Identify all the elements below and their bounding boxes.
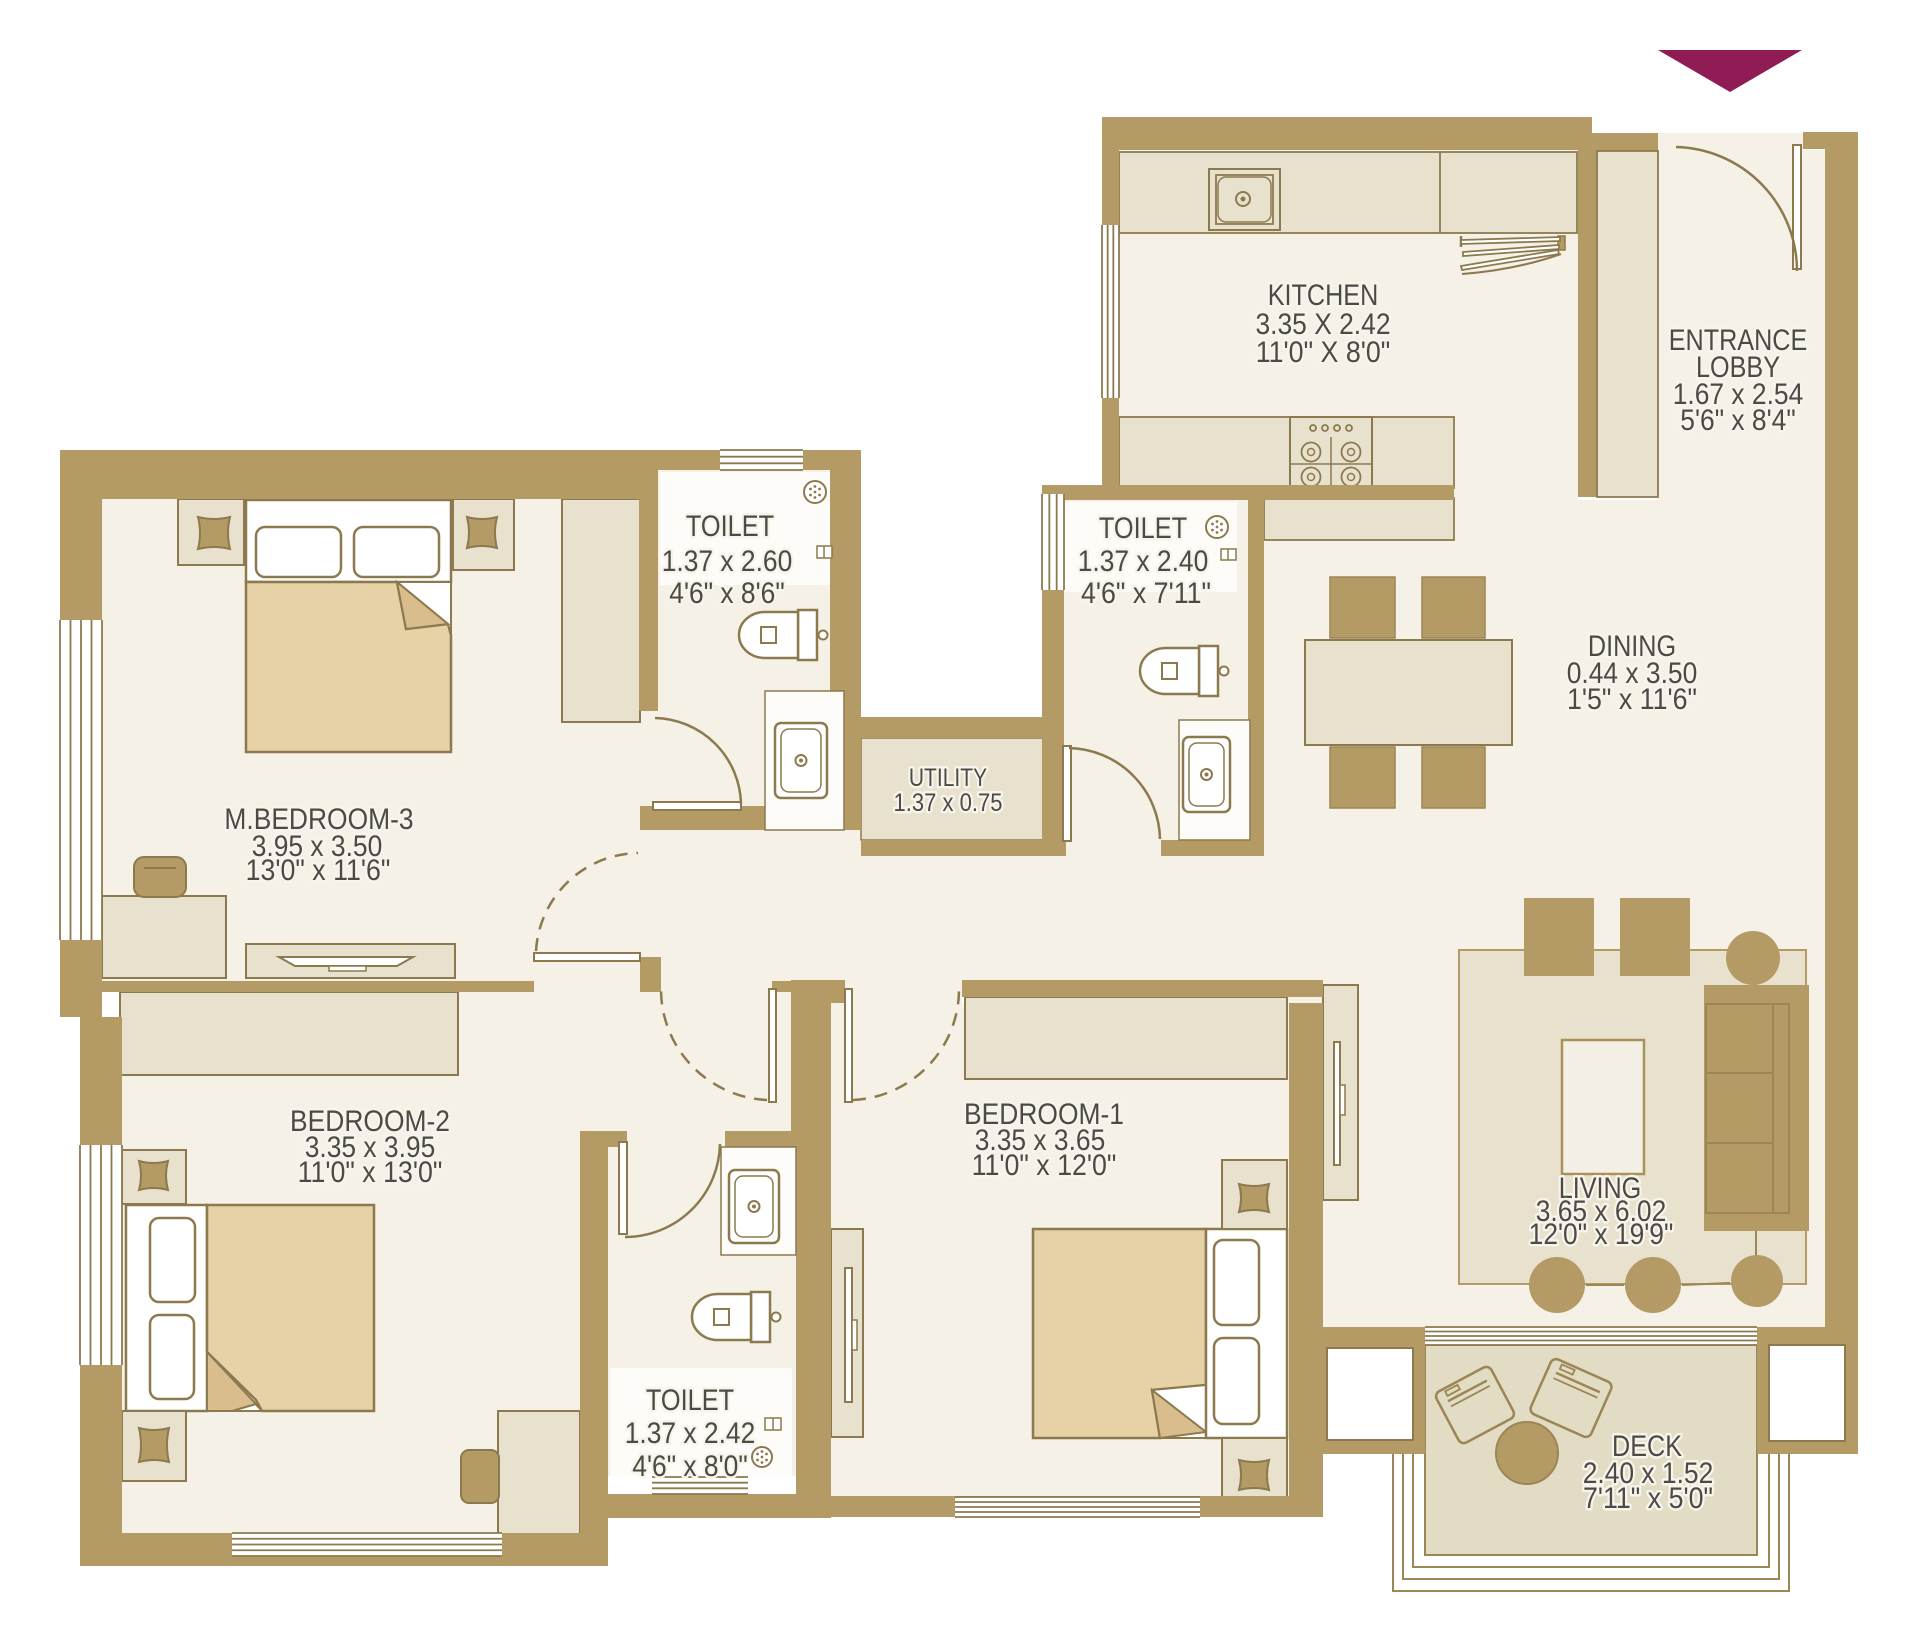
svg-text:TOILET: TOILET	[1099, 512, 1187, 545]
svg-text:1.37 x 2.42: 1.37 x 2.42	[625, 1417, 756, 1450]
svg-text:1.37 x 2.40: 1.37 x 2.40	[1078, 545, 1209, 578]
svg-text:1'5" x 11'6": 1'5" x 11'6"	[1567, 683, 1697, 716]
svg-text:TOILET: TOILET	[686, 510, 774, 543]
svg-text:4'6" x 8'6": 4'6" x 8'6"	[669, 577, 784, 610]
svg-text:7'11" x 5'0": 7'11" x 5'0"	[1583, 1482, 1713, 1515]
svg-text:1.37 x 0.75: 1.37 x 0.75	[894, 789, 1003, 817]
svg-text:11'0" x 12'0": 11'0" x 12'0"	[972, 1149, 1117, 1182]
svg-text:13'0" x 11'6": 13'0" x 11'6"	[246, 854, 391, 887]
svg-text:4'6" x 8'0": 4'6" x 8'0"	[632, 1450, 747, 1483]
svg-text:11'0" X 8'0": 11'0" X 8'0"	[1256, 336, 1391, 369]
svg-text:1.37 x 2.60: 1.37 x 2.60	[662, 545, 793, 578]
svg-text:4'6" x 7'11": 4'6" x 7'11"	[1081, 577, 1211, 610]
svg-text:TOILET: TOILET	[646, 1384, 734, 1417]
svg-text:UTILITY: UTILITY	[909, 764, 987, 792]
svg-text:5'6" x 8'4": 5'6" x 8'4"	[1680, 404, 1795, 437]
svg-text:11'0" x 13'0": 11'0" x 13'0"	[298, 1156, 443, 1189]
svg-text:12'0" x 19'9": 12'0" x 19'9"	[1529, 1218, 1674, 1251]
